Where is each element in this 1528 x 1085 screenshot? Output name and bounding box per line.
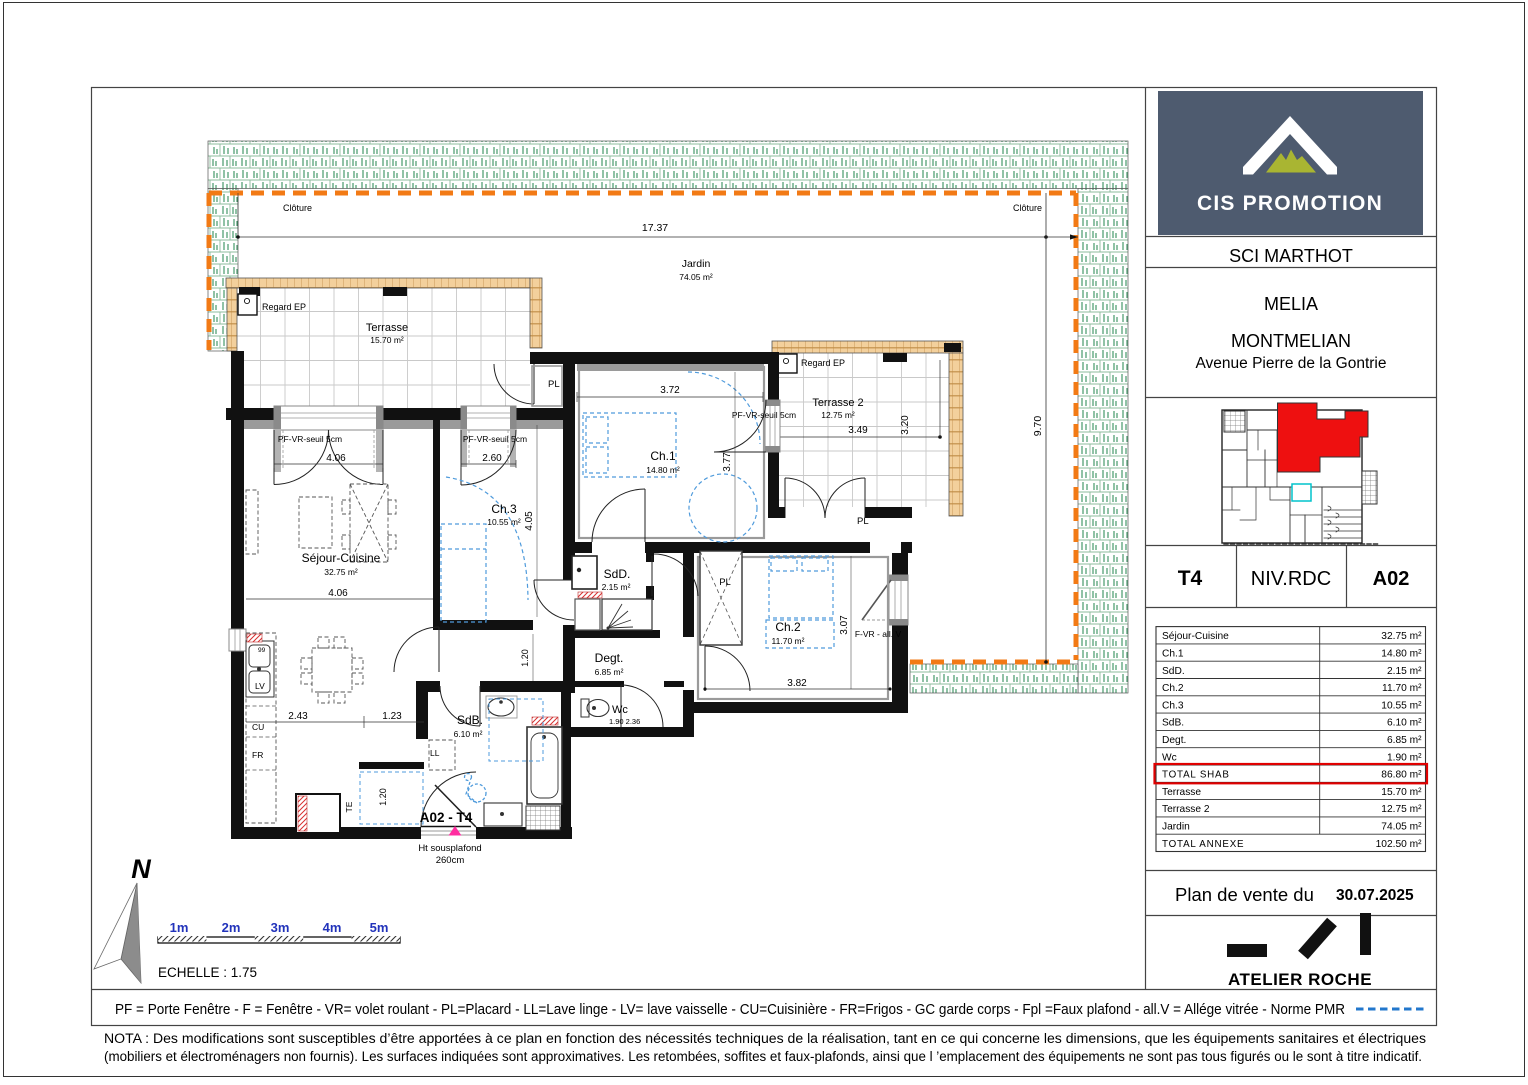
svg-text:Ch.2: Ch.2: [1162, 683, 1184, 694]
svg-text:3.07: 3.07: [839, 615, 850, 635]
svg-text:PF-VR-seuil 5cm: PF-VR-seuil 5cm: [278, 434, 342, 444]
svg-text:Degt.: Degt.: [595, 651, 624, 665]
svg-text:MONTMELIAN: MONTMELIAN: [1231, 331, 1351, 351]
svg-text:PF-VR-seuil 5cm: PF-VR-seuil 5cm: [732, 410, 796, 420]
svg-text:SdD.: SdD.: [1162, 666, 1185, 677]
svg-text:Ch.3: Ch.3: [1162, 700, 1184, 711]
svg-text:SdD.: SdD.: [604, 567, 631, 581]
svg-text:2.15 m²: 2.15 m²: [1387, 666, 1422, 677]
svg-text:12.75 m²: 12.75 m²: [1381, 804, 1422, 815]
svg-text:1m: 1m: [170, 920, 189, 935]
svg-text:3.77: 3.77: [722, 452, 733, 472]
svg-text:10.55 m²: 10.55 m²: [1381, 700, 1422, 711]
svg-text:PF = Porte Fenêtre - F = Fenêt: PF = Porte Fenêtre - F = Fenêtre - VR= v…: [115, 1002, 1345, 1018]
svg-text:Wc: Wc: [1162, 752, 1177, 763]
svg-text:6.10 m²: 6.10 m²: [1387, 718, 1422, 729]
svg-text:32.75 m²: 32.75 m²: [1381, 631, 1422, 642]
svg-text:6.85 m²: 6.85 m²: [1387, 735, 1422, 746]
svg-text:3.82: 3.82: [787, 678, 807, 689]
svg-text:30.07.2025: 30.07.2025: [1336, 887, 1414, 904]
svg-text:102.50 m²: 102.50 m²: [1376, 839, 1422, 850]
svg-text:ATELIER ROCHE: ATELIER ROCHE: [1228, 970, 1372, 989]
svg-text:Ch.1: Ch.1: [650, 449, 676, 463]
svg-text:Terrasse: Terrasse: [366, 322, 408, 334]
svg-text:1.90 2.36: 1.90 2.36: [609, 717, 640, 726]
svg-text:Clôture: Clôture: [283, 203, 312, 213]
svg-text:11.70 m²: 11.70 m²: [772, 636, 805, 646]
svg-text:4.05: 4.05: [524, 511, 535, 531]
svg-text:PL: PL: [719, 577, 731, 588]
svg-text:Ht sousplafond: Ht sousplafond: [418, 843, 481, 854]
svg-text:Avenue Pierre de la Gontrie: Avenue Pierre de la Gontrie: [1196, 355, 1387, 372]
svg-text:A02 - T4: A02 - T4: [420, 810, 473, 825]
svg-text:2m: 2m: [222, 920, 241, 935]
svg-text:TE: TE: [344, 801, 354, 812]
svg-text:3.49: 3.49: [848, 425, 868, 436]
svg-text:11.70 m²: 11.70 m²: [1382, 683, 1422, 694]
svg-text:F-VR - all. V: F-VR - all. V: [855, 629, 902, 639]
svg-text:6.85 m²: 6.85 m²: [595, 667, 624, 677]
svg-text:5m: 5m: [370, 920, 389, 935]
svg-text:99: 99: [258, 647, 266, 654]
svg-text:LL: LL: [430, 748, 440, 758]
svg-text:3m: 3m: [271, 920, 290, 935]
svg-text:A02: A02: [1373, 568, 1410, 590]
svg-text:4.06: 4.06: [328, 588, 348, 599]
svg-text:3.20: 3.20: [900, 415, 911, 435]
svg-text:15.70 m²: 15.70 m²: [370, 335, 404, 345]
svg-text:Jardin: Jardin: [1162, 822, 1190, 833]
svg-text:Séjour-Cuisine: Séjour-Cuisine: [302, 551, 381, 565]
svg-text:1.90 m²: 1.90 m²: [1387, 752, 1422, 763]
svg-text:Terrasse 2: Terrasse 2: [1162, 804, 1210, 815]
svg-text:Plan de vente du: Plan de vente du: [1175, 884, 1314, 905]
svg-text:SCI MARTHOT: SCI MARTHOT: [1229, 246, 1353, 266]
svg-text:4m: 4m: [323, 920, 342, 935]
svg-text:SdB.: SdB.: [457, 713, 483, 727]
svg-text:86.80 m²: 86.80 m²: [1381, 770, 1422, 781]
svg-text:3.72: 3.72: [660, 385, 680, 396]
svg-text:LV: LV: [255, 681, 265, 691]
svg-text:2.15 m²: 2.15 m²: [602, 582, 631, 592]
svg-text:32.75 m²: 32.75 m²: [324, 567, 358, 577]
svg-text:Ch.1: Ch.1: [1162, 649, 1184, 660]
svg-text:15.70 m²: 15.70 m²: [1381, 787, 1422, 798]
svg-text:TOTAL SHAB: TOTAL SHAB: [1162, 770, 1230, 781]
svg-text:T4: T4: [1178, 567, 1203, 590]
svg-text:2.60: 2.60: [482, 453, 502, 464]
svg-text:FR: FR: [252, 750, 263, 760]
svg-text:14.80 m²: 14.80 m²: [646, 465, 680, 475]
svg-text:12.75 m²: 12.75 m²: [821, 410, 855, 420]
svg-text:6.10 m²: 6.10 m²: [454, 729, 483, 739]
svg-text:1.20: 1.20: [378, 788, 388, 806]
svg-text:14.80 m²: 14.80 m²: [1381, 649, 1422, 660]
svg-text:74.05 m²: 74.05 m²: [679, 272, 713, 282]
svg-text:(mobiliers et électroménagers: (mobiliers et électroménagers non fourni…: [104, 1049, 1422, 1065]
svg-text:Ch.2: Ch.2: [775, 620, 801, 634]
svg-text:Ch.3: Ch.3: [491, 502, 517, 516]
svg-text:Terrasse: Terrasse: [1162, 787, 1201, 798]
svg-text:74.05 m²: 74.05 m²: [1381, 822, 1422, 833]
svg-text:Wc: Wc: [612, 704, 628, 716]
svg-text:260cm: 260cm: [436, 855, 465, 866]
svg-text:Clôture: Clôture: [1013, 203, 1042, 213]
svg-text:PL: PL: [548, 379, 560, 390]
svg-text:Jardin: Jardin: [682, 258, 711, 270]
svg-text:2.43: 2.43: [288, 711, 308, 722]
svg-text:4.06: 4.06: [326, 453, 346, 464]
svg-text:NOTA : Des modifications sont: NOTA : Des modifications sont susceptibl…: [104, 1031, 1426, 1047]
svg-text:PF-VR-seuil 5cm: PF-VR-seuil 5cm: [463, 434, 527, 444]
svg-text:ECHELLE : 1.75: ECHELLE : 1.75: [158, 965, 257, 980]
svg-text:N: N: [131, 854, 151, 884]
svg-text:CIS PROMOTION: CIS PROMOTION: [1197, 192, 1383, 215]
svg-text:MELIA: MELIA: [1264, 294, 1318, 314]
svg-text:Regard EP: Regard EP: [801, 358, 845, 368]
svg-text:CU: CU: [252, 722, 264, 732]
svg-text:Degt.: Degt.: [1162, 735, 1186, 746]
svg-text:NIV.RDC: NIV.RDC: [1251, 568, 1331, 590]
svg-text:10.55 m²: 10.55 m²: [487, 517, 521, 527]
svg-text:Terrasse 2: Terrasse 2: [812, 397, 863, 409]
svg-text:1.20: 1.20: [520, 649, 530, 667]
svg-text:17.37: 17.37: [642, 222, 668, 234]
svg-text:Séjour-Cuisine: Séjour-Cuisine: [1162, 631, 1229, 642]
svg-text:Regard EP: Regard EP: [262, 302, 306, 312]
svg-text:TOTAL ANNEXE: TOTAL ANNEXE: [1162, 839, 1244, 850]
svg-text:SdB.: SdB.: [1162, 718, 1184, 729]
svg-text:9.70: 9.70: [1032, 416, 1044, 437]
svg-text:1.23: 1.23: [382, 711, 402, 722]
